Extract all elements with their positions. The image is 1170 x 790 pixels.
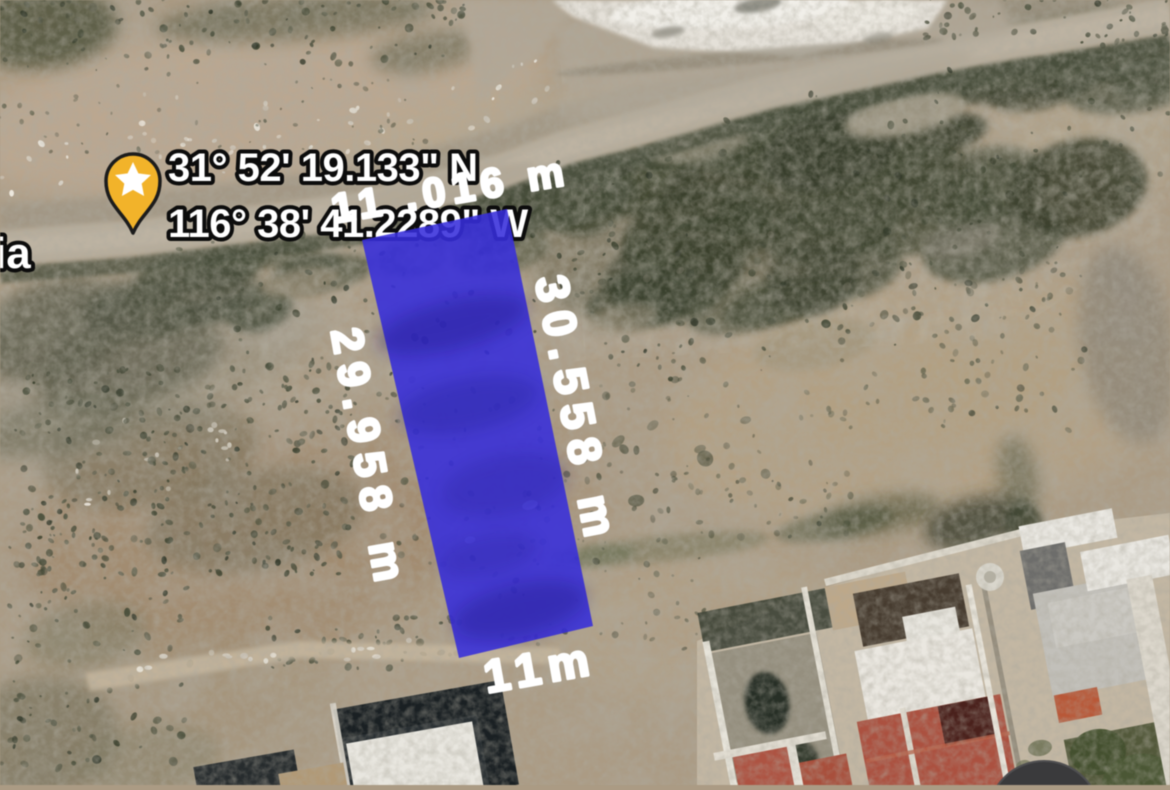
svg-text:ia: ia [0,229,31,278]
